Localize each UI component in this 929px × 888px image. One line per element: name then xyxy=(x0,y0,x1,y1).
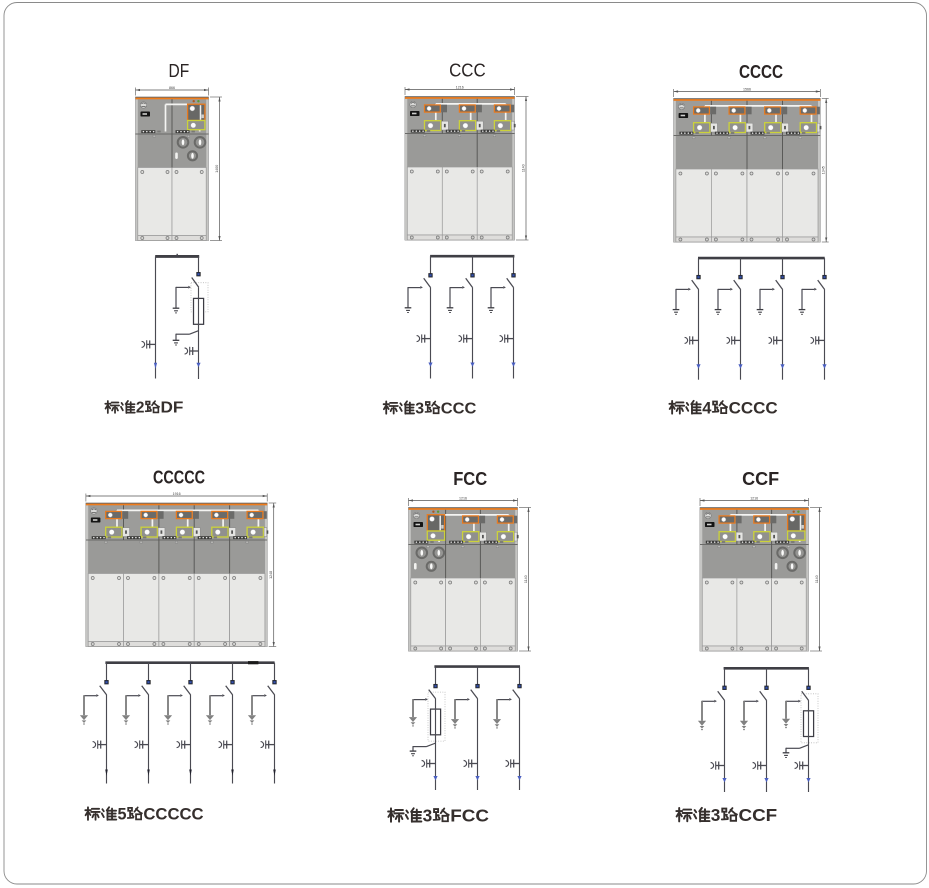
svg-text:1216: 1216 xyxy=(750,496,758,500)
svg-text:1216: 1216 xyxy=(456,85,464,89)
svg-text:1140: 1140 xyxy=(522,164,526,172)
svg-text:CCCC: CCCC xyxy=(729,399,778,417)
svg-text:1140: 1140 xyxy=(524,575,528,583)
svg-text:1916: 1916 xyxy=(173,492,181,496)
svg-text:DF: DF xyxy=(169,60,190,81)
svg-text:3: 3 xyxy=(711,805,721,825)
svg-text:5: 5 xyxy=(118,805,127,823)
svg-text:1248: 1248 xyxy=(269,571,273,579)
svg-text:1140: 1140 xyxy=(815,575,819,583)
svg-text:3: 3 xyxy=(415,400,424,417)
svg-text:CCCCC: CCCCC xyxy=(143,805,204,823)
svg-text:2: 2 xyxy=(136,400,145,417)
svg-text:4: 4 xyxy=(702,399,712,417)
svg-text:CCC: CCC xyxy=(449,60,486,81)
svg-text:CCCCC: CCCCC xyxy=(153,467,205,488)
svg-text:CCF: CCF xyxy=(742,468,779,489)
svg-text:FCC: FCC xyxy=(453,468,487,489)
svg-text:CCF: CCF xyxy=(739,805,778,825)
svg-text:1216: 1216 xyxy=(459,496,467,500)
svg-text:DF: DF xyxy=(161,400,184,417)
svg-text:CCC: CCC xyxy=(441,400,477,417)
svg-text:1345: 1345 xyxy=(822,166,826,174)
svg-text:1400: 1400 xyxy=(215,165,219,173)
svg-text:866: 866 xyxy=(169,86,175,90)
svg-text:FCC: FCC xyxy=(450,805,489,825)
svg-text:1566: 1566 xyxy=(743,87,751,91)
svg-text:CCCC: CCCC xyxy=(739,61,783,82)
svg-text:3: 3 xyxy=(423,805,433,825)
